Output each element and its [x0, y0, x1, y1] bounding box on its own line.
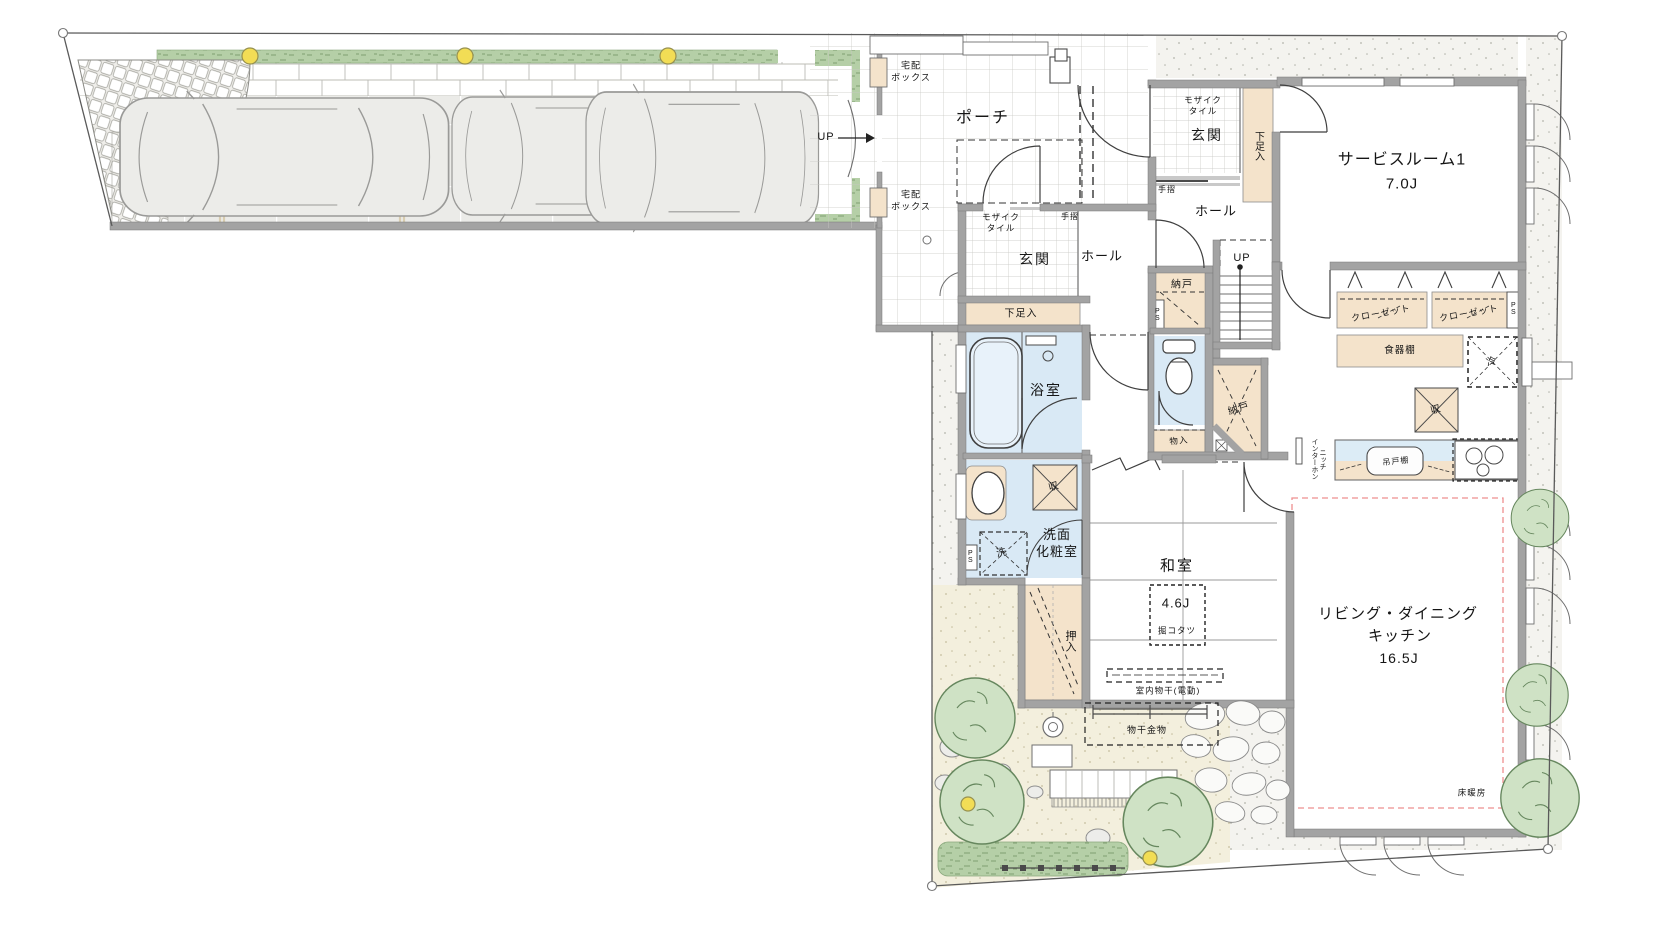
garden-light-icon [457, 48, 473, 64]
sink-icon [1367, 447, 1423, 475]
bathtub-icon [970, 338, 1022, 448]
water-basin-icon [1043, 717, 1063, 737]
tree-icon [1506, 664, 1568, 726]
hedge [938, 842, 1128, 876]
bath-counter [1026, 336, 1056, 345]
storage-monoire [1152, 430, 1205, 452]
closet-2 [1432, 292, 1507, 328]
basin-icon [972, 472, 1004, 514]
shoe-cabinet-2 [1243, 88, 1273, 202]
dish-cabinet [1337, 335, 1463, 367]
floor-plan-drawing [0, 0, 1668, 941]
parking-south-wall [110, 222, 882, 230]
shoe-cabinet-1 [963, 301, 1080, 325]
garden-light-icon [660, 48, 676, 64]
car-icon [120, 91, 449, 223]
garden-light-icon [242, 48, 258, 64]
planter [1032, 745, 1072, 767]
tree-icon [1511, 489, 1569, 547]
entrance-2-floor [1153, 88, 1240, 173]
floor-plan: 宅配 ボックス 宅配 ボックス ポーチ UP モザイク タイル 玄関 下足入 手… [0, 0, 1668, 941]
oshiire-closet [1025, 585, 1082, 700]
garden-light-icon [1143, 851, 1157, 865]
canopy [870, 36, 963, 54]
intercom-niche-box [1296, 438, 1302, 464]
toilet-icon [1166, 358, 1192, 394]
entrance-1-floor [963, 210, 1078, 301]
louver [1522, 338, 1532, 386]
garden-light-icon [961, 797, 975, 811]
tree-icon [940, 760, 1024, 844]
canopy [963, 42, 1048, 55]
tree-icon [1501, 759, 1579, 837]
car-icon [586, 84, 819, 232]
ac-pad [1532, 362, 1572, 379]
tree-icon [935, 678, 1015, 758]
parking-area [78, 48, 882, 232]
tree-icon [1123, 777, 1213, 867]
delivery-box-icon [870, 58, 887, 87]
closet-1 [1337, 292, 1427, 328]
delivery-box-icon [870, 188, 887, 217]
